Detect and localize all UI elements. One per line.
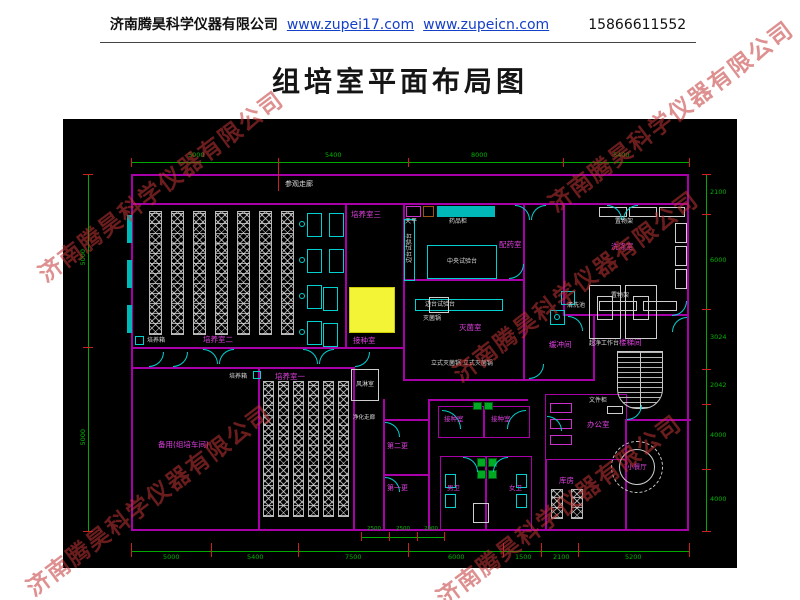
shelf-label: 置物架 — [615, 219, 633, 225]
dimension-tick — [408, 543, 409, 557]
air-shower-icon: 风淋室 — [351, 369, 379, 401]
dimension-tick — [408, 158, 409, 167]
dimension-tick — [417, 532, 418, 541]
dim-left-1: 5000 — [80, 429, 87, 446]
dim-right-1: 6000 — [710, 257, 727, 264]
floorplan-canvas: 中央试验台 风淋室 小餐厅 — [63, 119, 737, 568]
bench-unit — [323, 323, 338, 347]
medicine-cabinet-label: 药品柜 — [449, 219, 467, 225]
air-shower-label: 风淋室 — [356, 382, 374, 388]
room-label-culture1: 培养室一 — [275, 373, 305, 381]
room-label-storage: 库房 — [559, 477, 574, 485]
cabinet-icon — [675, 223, 687, 243]
phone-number: 15866611552 — [588, 17, 686, 33]
dimension-tick — [702, 309, 711, 310]
clean-corridor-label: 净化走廊 — [353, 416, 375, 422]
room-label-culture2: 培养室二 — [203, 336, 233, 344]
wall — [383, 419, 430, 421]
wall — [483, 406, 485, 438]
culture-rack — [263, 381, 274, 517]
link-zupeicn[interactable]: www.zupeicn.com — [423, 17, 549, 33]
window-icon — [127, 215, 132, 243]
room-label-inoc1: 接种室 — [444, 416, 464, 423]
dim-top-2: 8000 — [471, 152, 488, 159]
central-bench-label: 中央试验台 — [447, 259, 477, 265]
bench-unit — [329, 249, 344, 273]
clean-bench-detail — [597, 296, 613, 320]
dimension-tick — [278, 158, 279, 167]
dimension-tick — [702, 469, 711, 470]
stool-icon — [299, 293, 305, 299]
room-label-pharmacy: 配药室 — [499, 241, 522, 249]
dimension-tick — [702, 369, 711, 370]
culture-rack — [281, 211, 294, 335]
dimension-tick — [389, 532, 390, 541]
bench-unit — [307, 213, 322, 237]
dining-label: 小餐厅 — [627, 464, 647, 471]
room-label-inoc2: 接种室 — [491, 416, 511, 423]
dimension-line — [131, 551, 689, 552]
room-label-spare: 备用(组培车间) — [158, 441, 209, 449]
page-header: 济南腾昊科学仪器有限公司 www.zupei17.com www.zupeicn… — [100, 14, 696, 43]
dimension-tick — [689, 158, 690, 167]
desk-icon — [550, 435, 572, 445]
dim-bottom-4: 1500 — [515, 554, 532, 561]
room-label-toilet-f: 女卫 — [509, 485, 522, 492]
dim-bottom-2: 7500 — [345, 554, 362, 561]
room-label-stair: 楼梯间 — [619, 339, 642, 347]
dimension-tick — [278, 167, 279, 191]
dim-bottom-6: 5200 — [625, 554, 642, 561]
company-name: 济南腾昊科学仪器有限公司 — [110, 14, 278, 34]
wall — [428, 399, 528, 401]
dim-right-5: 4000 — [710, 496, 727, 503]
cabinet-icon — [675, 269, 687, 289]
incubator-icon — [135, 336, 144, 345]
dim-right-4: 4000 — [710, 432, 727, 439]
culture-rack — [278, 381, 289, 517]
dimension-tick — [702, 174, 711, 175]
highlight-marker — [349, 287, 395, 333]
room-label-culture3: 培养室三 — [351, 211, 381, 219]
toilet-icon — [516, 494, 527, 508]
sterilizer-row-label: 立式灭菌锅 立式灭菌锅 — [431, 361, 493, 367]
culture-rack — [193, 211, 206, 335]
autoclave-label: 灭菌锅 — [423, 316, 441, 322]
culture-rack — [237, 211, 250, 335]
side-bench-label: 边台试验台 — [425, 302, 455, 308]
dimension-tick — [702, 404, 711, 405]
room-label-office: 办公室 — [587, 421, 610, 429]
wall — [258, 367, 260, 531]
stool-icon — [299, 329, 305, 335]
sink-drain-icon — [554, 314, 560, 320]
wall — [523, 203, 525, 381]
dim-top-0: 5000 — [188, 152, 205, 159]
dimension-line — [706, 174, 707, 531]
bench-unit — [307, 285, 322, 309]
dimension-tick — [211, 543, 212, 557]
window-icon — [127, 305, 132, 333]
desk-icon — [550, 403, 572, 413]
window-icon — [127, 260, 132, 288]
culture-rack — [338, 381, 349, 517]
shelf-icon — [659, 207, 685, 217]
dimension-tick — [131, 543, 132, 557]
culture-rack — [308, 381, 319, 517]
central-bench: 中央试验台 — [427, 245, 497, 279]
clean-bench-detail — [633, 296, 649, 320]
wall — [545, 460, 547, 530]
dimension-tick — [702, 214, 711, 215]
balance-icon — [406, 206, 421, 217]
dim-bottom-1: 5400 — [247, 554, 264, 561]
storage-rack — [551, 489, 563, 519]
wall — [403, 279, 525, 281]
stool-icon — [299, 257, 305, 263]
dimension-line — [88, 174, 89, 531]
bench-unit — [329, 213, 344, 237]
side-bench-label: 边台试验台 — [407, 233, 413, 263]
dim-sub-1: 2500 — [396, 527, 410, 533]
dim-right-0: 2100 — [710, 189, 727, 196]
dimension-tick — [83, 347, 93, 348]
wall — [131, 347, 405, 349]
wall — [403, 379, 595, 381]
fridge-icon — [423, 206, 434, 217]
room-label-inoculation: 接种室 — [353, 337, 376, 345]
dimension-tick — [563, 158, 564, 167]
incubator-label: 培养箱 — [147, 338, 165, 344]
culture-rack — [259, 211, 272, 335]
dimension-line — [131, 162, 689, 163]
dining-table-icon: 小餐厅 — [619, 449, 655, 485]
room-label-toilet-m: 男卫 — [447, 485, 460, 492]
cabinet-icon — [675, 246, 687, 266]
staircase-rail — [640, 352, 641, 410]
bench-unit — [307, 321, 322, 345]
dimension-tick — [83, 531, 93, 532]
room-label-change1: 第一更 — [387, 485, 408, 492]
culture-rack — [149, 211, 162, 335]
dimension-tick — [702, 531, 711, 532]
medicine-cabinet-icon — [437, 206, 495, 217]
dimension-tick — [361, 532, 362, 541]
dim-bottom-3: 6000 — [448, 554, 465, 561]
dim-left-0: 5000 — [80, 249, 87, 266]
dimension-tick — [444, 532, 445, 541]
room-label-washing: 洗涤室 — [611, 243, 634, 251]
wall — [345, 203, 347, 349]
bench-unit — [307, 249, 322, 273]
dimension-tick — [131, 158, 132, 167]
incubator-label: 培养箱 — [229, 374, 247, 380]
file-cabinet-icon — [607, 406, 623, 414]
dim-right-2: 3024 — [710, 334, 727, 341]
wall — [428, 399, 430, 531]
wall — [383, 474, 430, 476]
basin-icon — [477, 458, 486, 467]
dimension-tick — [83, 174, 93, 175]
incubator-icon — [253, 371, 261, 379]
dimension-tick — [298, 543, 299, 557]
pass-window-icon — [484, 402, 493, 410]
dim-right-3: 2042 — [710, 382, 727, 389]
culture-rack — [293, 381, 304, 517]
link-zupei17[interactable]: www.zupei17.com — [287, 17, 414, 33]
clean-bench-label: 超净工作台 — [589, 341, 619, 347]
basin-icon — [477, 470, 486, 479]
culture-rack — [323, 381, 334, 517]
washstand-icon — [473, 503, 489, 523]
stool-icon — [299, 221, 305, 227]
dim-sub-0: 2500 — [367, 527, 381, 533]
culture-rack — [171, 211, 184, 335]
room-label-change2: 第二更 — [387, 443, 408, 450]
dim-top-1: 5400 — [325, 152, 342, 159]
pass-window-icon — [473, 402, 482, 410]
wall — [131, 367, 355, 369]
dimension-tick — [578, 543, 579, 557]
corridor-label: 参观走廊 — [285, 181, 313, 188]
dim-sub-2: 2000 — [424, 527, 438, 533]
staircase-icon — [617, 351, 663, 409]
dimension-line — [361, 537, 444, 538]
dim-bottom-0: 5000 — [163, 554, 180, 561]
dim-top-3: 5400 — [613, 152, 630, 159]
storage-rack — [571, 489, 583, 519]
wall — [131, 203, 689, 205]
wall — [625, 419, 691, 421]
dimension-tick — [541, 543, 542, 557]
room-label-sterilize: 灭菌室 — [459, 324, 482, 332]
culture-rack — [215, 211, 228, 335]
dimension-tick — [503, 543, 504, 557]
dim-bottom-5: 2100 — [553, 554, 570, 561]
bench-unit — [323, 287, 338, 311]
toilet-icon — [445, 494, 456, 508]
shelf-label: 置物架 — [611, 293, 629, 299]
dimension-tick — [689, 543, 690, 557]
clean-bench-icon — [625, 285, 657, 339]
file-cabinet-label: 文件柜 — [589, 398, 607, 404]
balance-label: 天平 — [405, 219, 417, 225]
room-label-buffer: 缓冲间 — [549, 341, 572, 349]
sink-label: 清洗池 — [567, 303, 585, 309]
page-title: 组培室平面布局图 — [0, 60, 800, 100]
